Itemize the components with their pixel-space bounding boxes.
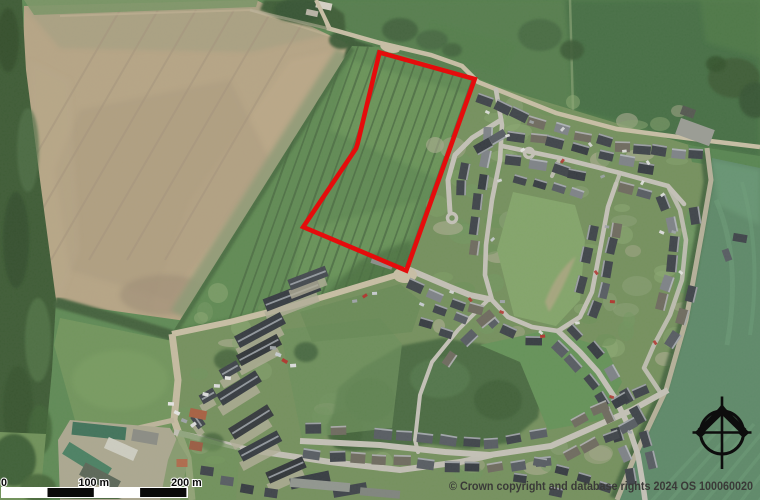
svg-text:0: 0 bbox=[1, 477, 7, 489]
svg-text:© Crown copyright and database: © Crown copyright and database rights 20… bbox=[449, 481, 753, 493]
svg-text:200 m: 200 m bbox=[171, 477, 202, 489]
svg-text:100 m: 100 m bbox=[78, 477, 109, 489]
